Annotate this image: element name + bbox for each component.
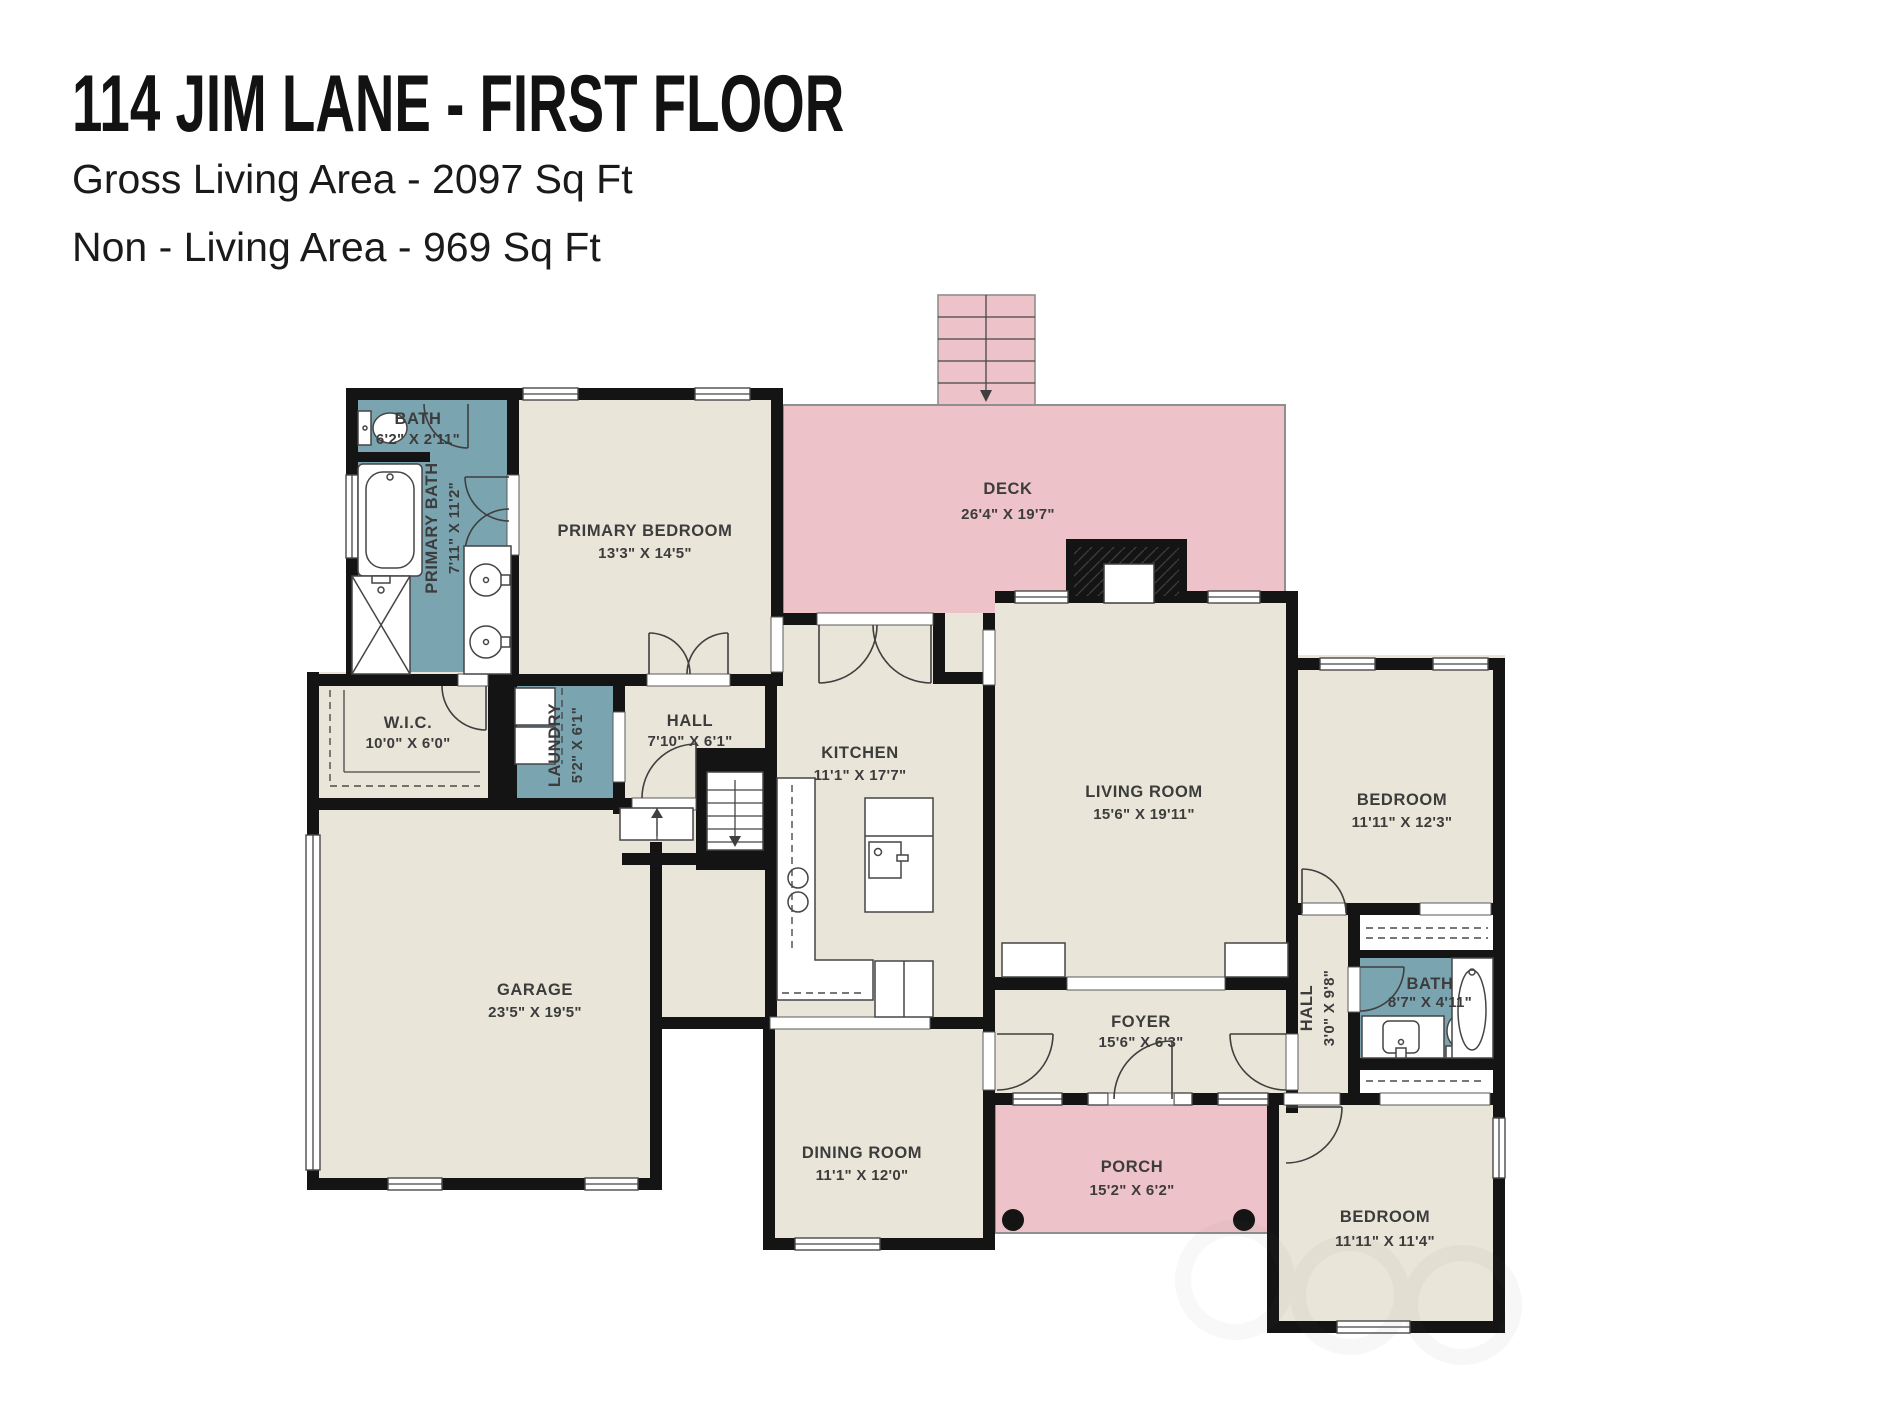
- garage-floor: [307, 798, 662, 1190]
- foyer-dims: 15'6" X 6'3": [1098, 1034, 1183, 1051]
- dining-room-dims: 11'1" X 12'0": [816, 1167, 909, 1184]
- window-icon: [346, 475, 358, 558]
- window-icon: [1320, 658, 1375, 670]
- foyer-closet: [1002, 943, 1065, 977]
- porch-label: PORCH: [1101, 1158, 1164, 1176]
- window-icon: [795, 1238, 880, 1250]
- kitchen-island-icon: [865, 798, 933, 912]
- window-icon: [1433, 658, 1488, 670]
- window-icon: [388, 1178, 442, 1190]
- wic-dims: 10'0" X 6'0": [365, 735, 450, 752]
- window-icon: [1174, 1093, 1192, 1105]
- window-icon: [1218, 1093, 1268, 1105]
- living-room-dims: 15'6" X 19'11": [1093, 806, 1194, 823]
- dining-room-label: DINING ROOM: [802, 1144, 922, 1162]
- window-icon: [1208, 591, 1260, 603]
- porch-dims: 15'2" X 6'2": [1089, 1182, 1174, 1199]
- living-room-label: LIVING ROOM: [1085, 783, 1203, 801]
- deck-dims: 26'4" X 19'7": [961, 506, 1055, 523]
- sink-icon: [1362, 1016, 1444, 1058]
- fireplace-icon: [1066, 539, 1187, 603]
- porch-column-icon: [1002, 1209, 1024, 1231]
- wic-label: W.I.C.: [384, 714, 433, 732]
- bedroom-right-label: BEDROOM: [1357, 791, 1447, 809]
- bedroom-right-dims: 11'11" X 12'3": [1352, 814, 1453, 831]
- window-icon: [1013, 1093, 1062, 1105]
- fridge-icon: [875, 961, 933, 1017]
- bedroom-bottom-label: BEDROOM: [1340, 1208, 1430, 1226]
- window-icon: [523, 388, 578, 400]
- hall-center-label: HALL: [667, 712, 713, 730]
- shower-icon: [352, 576, 410, 674]
- window-icon: [1088, 1093, 1108, 1105]
- garage-label: GARAGE: [497, 981, 573, 999]
- foyer-closet: [1225, 943, 1288, 977]
- deck-label: DECK: [983, 480, 1032, 498]
- garage-door-icon: [306, 835, 320, 1170]
- window-icon: [1493, 1118, 1505, 1178]
- bath-right-label: BATH: [1406, 975, 1453, 993]
- bedroom-bottom-dims: 11'11" X 11'4": [1335, 1233, 1435, 1250]
- bedroom-right-floor: [1286, 655, 1505, 915]
- kitchen-label: KITCHEN: [821, 744, 899, 762]
- kitchen-dims: 11'1" X 17'7": [814, 767, 907, 784]
- garage-dims: 23'5" X 19'5": [488, 1004, 582, 1021]
- window-icon: [585, 1178, 638, 1190]
- primary-bath-dims: 7'11" X 11'2": [446, 482, 463, 574]
- foyer-label: FOYER: [1111, 1013, 1171, 1031]
- double-sink-icon: [464, 546, 511, 674]
- bath-right-dims: 8'7" X 4'11": [1388, 994, 1472, 1011]
- primary-bath-label: PRIMARY BATH: [423, 462, 441, 594]
- hall-right-label: HALL: [1298, 985, 1316, 1031]
- laundry-label: LAUNDRY: [546, 703, 564, 787]
- floor-plan: DECK 26'4" X 19'7" BATH 6'2" X 2'11" PRI…: [0, 0, 1890, 1417]
- window-icon: [695, 388, 750, 400]
- dining-floor: [763, 1017, 995, 1250]
- hall-right-dims: 3'0" X 9'8": [1321, 970, 1338, 1046]
- laundry-dims: 5'2" X 6'1": [569, 707, 586, 783]
- bathtub-icon: [358, 464, 422, 576]
- bath-top-label: BATH: [394, 410, 441, 428]
- window-icon: [1015, 591, 1068, 603]
- hall-center-dims: 7'10" X 6'1": [647, 733, 732, 750]
- primary-bedroom-dims: 13'3" X 14'5": [598, 545, 692, 562]
- closet-top-floor: [1360, 915, 1493, 950]
- primary-bedroom-label: PRIMARY BEDROOM: [558, 522, 733, 540]
- bath-top-dims: 6'2" X 2'11": [376, 431, 460, 448]
